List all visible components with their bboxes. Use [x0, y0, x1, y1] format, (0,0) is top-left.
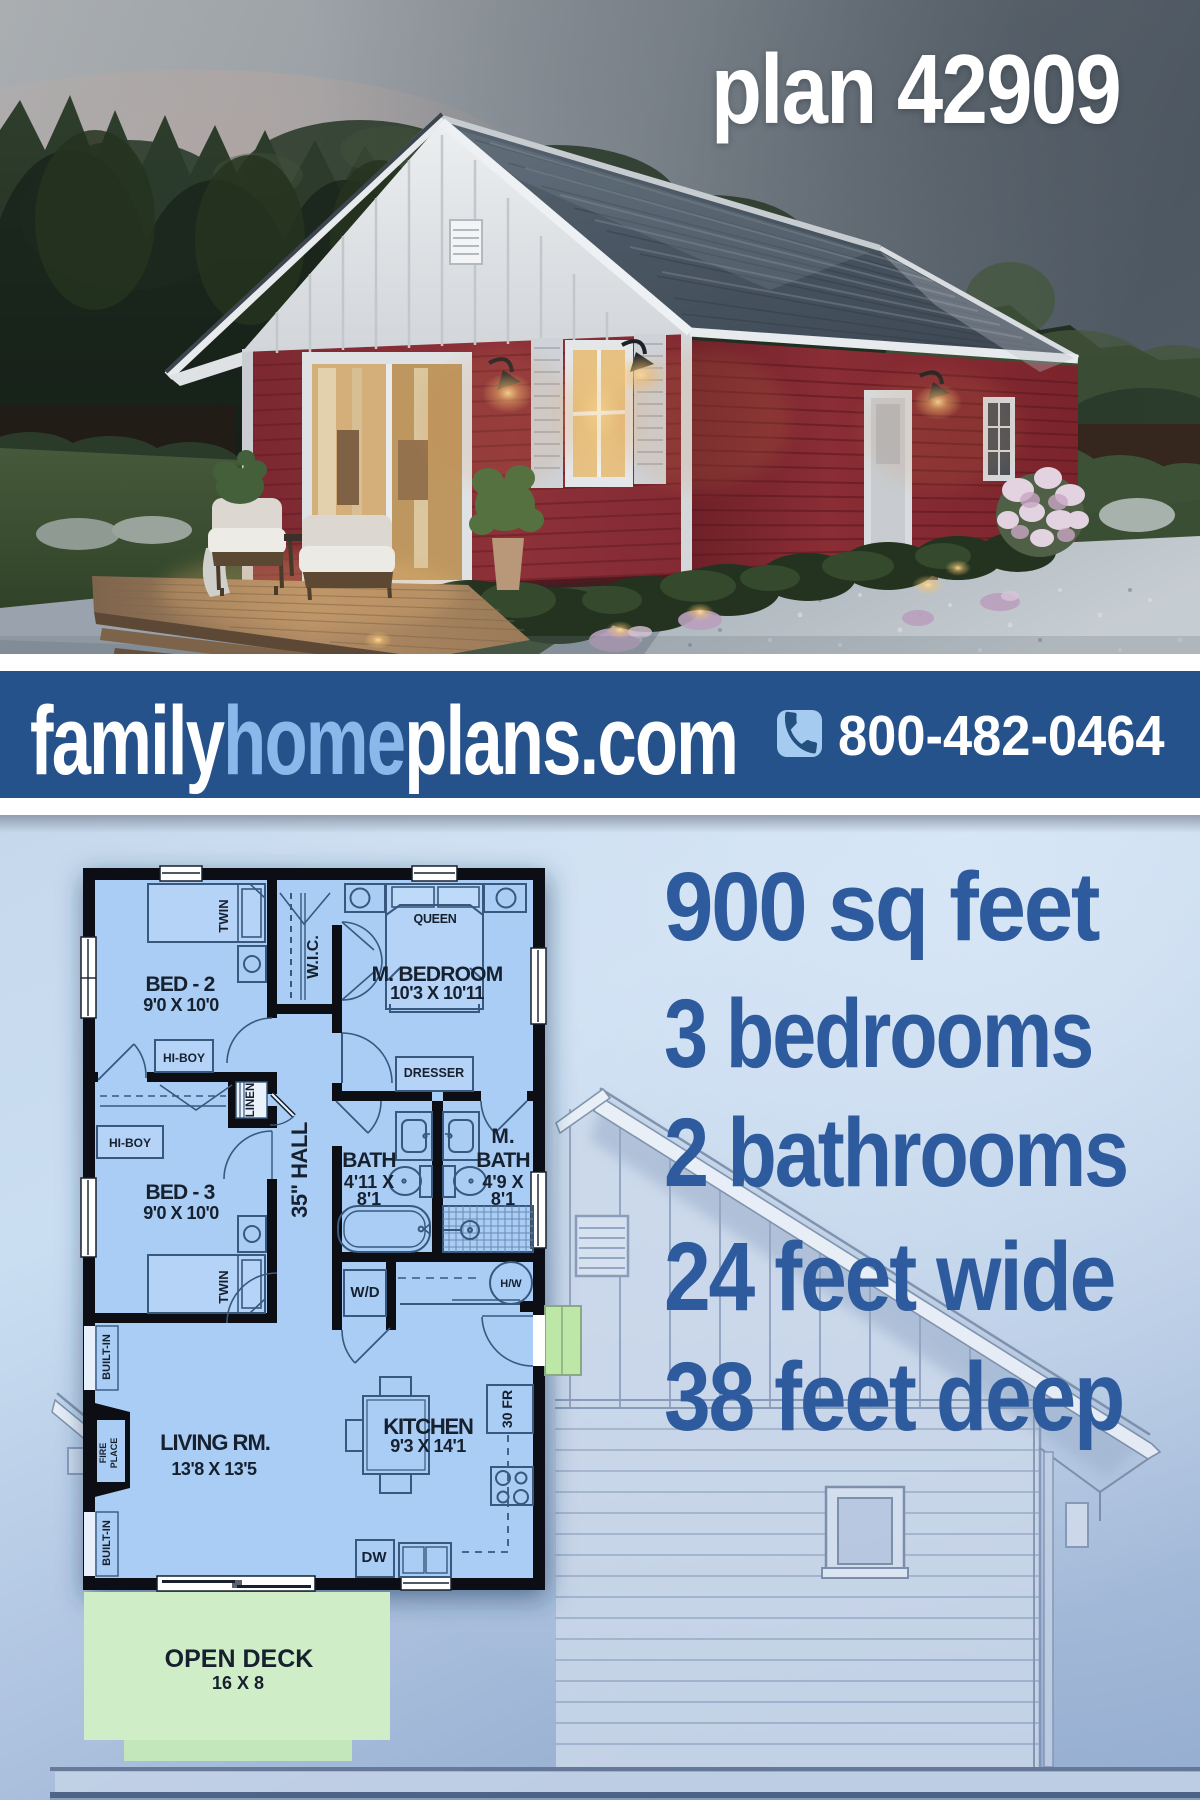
svg-text:W.I.C.: W.I.C.: [305, 935, 322, 979]
svg-text:FIRE: FIRE: [98, 1443, 108, 1464]
svg-text:DW: DW: [362, 1549, 388, 1566]
svg-text:QUEEN: QUEEN: [414, 912, 457, 926]
svg-text:13'8 X 13'5: 13'8 X 13'5: [171, 1459, 257, 1479]
svg-text:W/D: W/D: [350, 1284, 379, 1301]
svg-text:35" HALL: 35" HALL: [287, 1122, 312, 1218]
svg-text:TWIN: TWIN: [216, 1270, 231, 1303]
svg-text:BATH: BATH: [342, 1149, 396, 1172]
svg-text:9'0 X 10'0: 9'0 X 10'0: [143, 1203, 219, 1223]
svg-text:9'3 X 14'1: 9'3 X 14'1: [390, 1436, 466, 1456]
svg-text:16 X 8: 16 X 8: [212, 1673, 264, 1693]
svg-text:TWIN: TWIN: [216, 899, 231, 932]
svg-text:LIVING RM.: LIVING RM.: [160, 1430, 270, 1455]
svg-text:OPEN DECK: OPEN DECK: [165, 1645, 314, 1673]
svg-text:10'3 X 10'11: 10'3 X 10'11: [390, 983, 484, 1003]
svg-text:8'1: 8'1: [357, 1189, 381, 1209]
svg-text:LINEN: LINEN: [245, 1083, 257, 1118]
svg-text:BATH: BATH: [476, 1149, 530, 1172]
svg-text:BUILT-IN: BUILT-IN: [101, 1334, 113, 1380]
svg-text:BED - 2: BED - 2: [145, 973, 214, 996]
svg-text:30 FR: 30 FR: [499, 1390, 515, 1428]
svg-text:BED - 3: BED - 3: [145, 1181, 214, 1204]
svg-text:8'1: 8'1: [491, 1189, 515, 1209]
svg-text:HI-BOY: HI-BOY: [109, 1136, 151, 1150]
svg-text:PLACE: PLACE: [109, 1438, 119, 1469]
svg-text:DRESSER: DRESSER: [404, 1066, 464, 1080]
svg-text:9'0 X 10'0: 9'0 X 10'0: [143, 995, 219, 1015]
svg-text:H/W: H/W: [500, 1278, 522, 1290]
svg-text:HI-BOY: HI-BOY: [163, 1051, 205, 1065]
svg-text:M.: M.: [491, 1125, 514, 1148]
svg-text:BUILT-IN: BUILT-IN: [101, 1520, 113, 1566]
